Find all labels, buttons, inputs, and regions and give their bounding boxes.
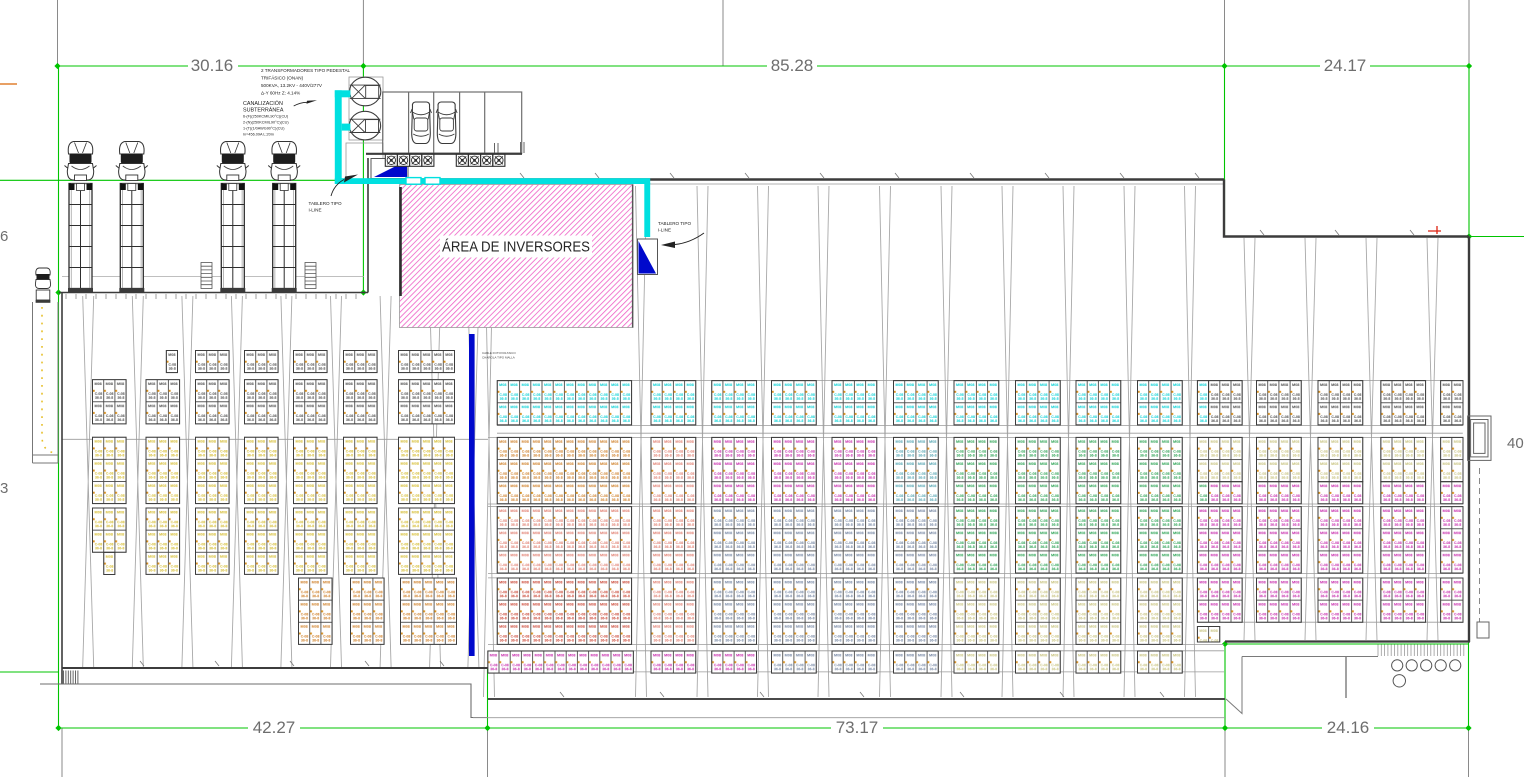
svg-text:ÁREA DE INVERSORES: ÁREA DE INVERSORES [442, 239, 590, 256]
svg-text:TABLERO TIPO: TABLERO TIPO [658, 221, 691, 226]
svg-text:42.27: 42.27 [253, 718, 296, 737]
svg-text:I-LINE: I-LINE [658, 228, 671, 233]
svg-text:TABLERO TIPO: TABLERO TIPO [309, 201, 342, 206]
svg-text:1-(T)(1/0AWG90°C)(CU): 1-(T)(1/0AWG90°C)(CU) [243, 127, 285, 131]
svg-text:30.16: 30.16 [191, 56, 234, 75]
svg-text:SUBTERRÁNEA: SUBTERRÁNEA [243, 107, 284, 114]
svg-text:40: 40 [1507, 435, 1524, 452]
svg-text:500KVA, 13.2KV - 440V/277V: 500KVA, 13.2KV - 440V/277V [261, 83, 323, 88]
svg-text:I-LINE: I-LINE [309, 208, 322, 213]
svg-text:2 TRANSFORMADORES TIPO PEDESTA: 2 TRANSFORMADORES TIPO PEDESTAL [261, 68, 351, 73]
svg-text:CABLE FOTOVOLTAICO: CABLE FOTOVOLTAICO [482, 351, 516, 355]
svg-text:85.28: 85.28 [771, 56, 814, 75]
svg-text:TRIFÁSICO (ONAN): TRIFÁSICO (ONAN) [261, 75, 304, 81]
svg-text:24.16: 24.16 [1327, 718, 1370, 737]
svg-text:6: 6 [0, 228, 8, 245]
svg-text:CANALIZACIÓN: CANALIZACIÓN [243, 100, 283, 107]
svg-text:6-(F)(250KCMIL90°C)(CU): 6-(F)(250KCMIL90°C)(CU) [243, 115, 289, 119]
svg-text:Δ-Y 60Hz Z: 4.14%: Δ-Y 60Hz Z: 4.14% [261, 91, 300, 96]
svg-text:3: 3 [0, 480, 8, 497]
svg-text:24.17: 24.17 [1324, 56, 1367, 75]
svg-text:2-(N)(250KCMIL90°C)(CU): 2-(N)(250KCMIL90°C)(CU) [243, 121, 289, 125]
svg-text:CHAROLA TIPO MALLA: CHAROLA TIPO MALLA [482, 356, 515, 360]
svg-text:In=456.09A L:20m: In=456.09A L:20m [243, 133, 274, 137]
svg-text:73.17: 73.17 [836, 718, 879, 737]
